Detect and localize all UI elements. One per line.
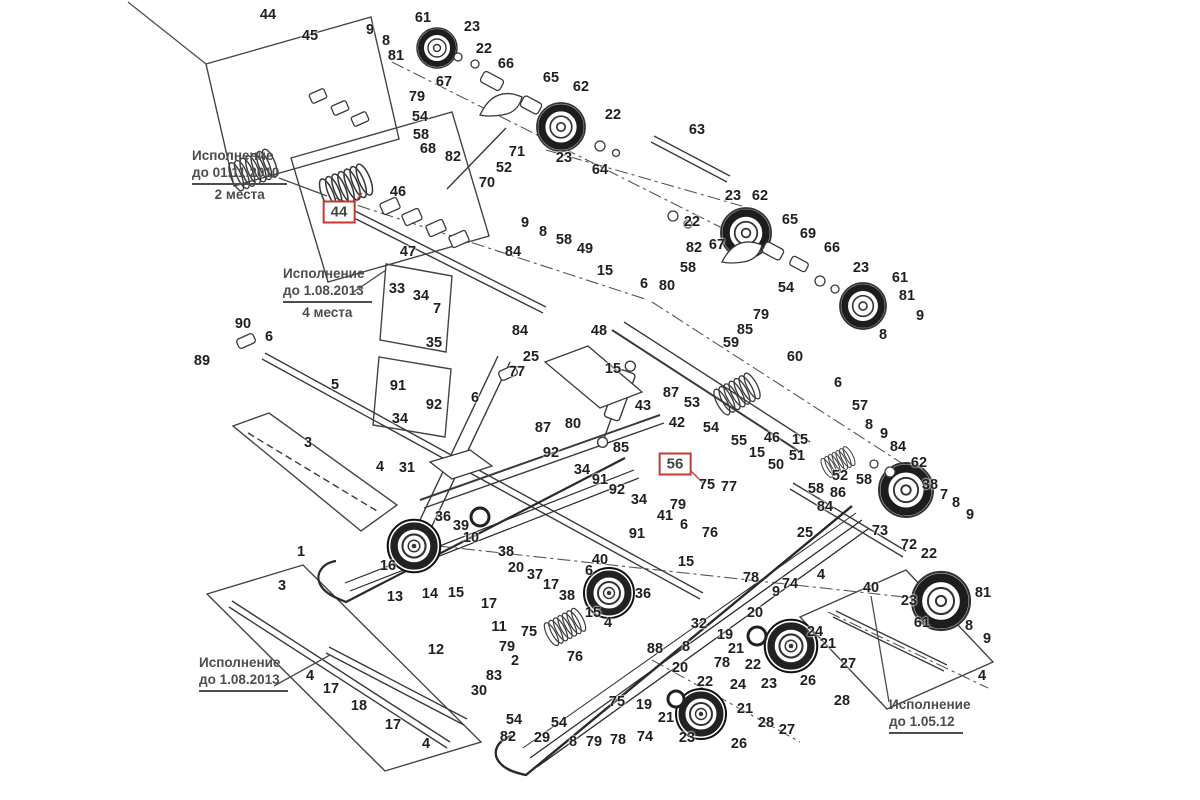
part-number-84: 84: [505, 245, 521, 260]
part-number-36: 36: [435, 510, 451, 525]
part-number-23: 23: [464, 20, 480, 35]
part-number-81: 81: [388, 49, 404, 64]
part-number-34: 34: [631, 493, 647, 508]
part-number-66: 66: [498, 57, 514, 72]
part-number-71: 71: [509, 145, 525, 160]
part-number-76: 76: [567, 650, 583, 665]
part-number-9: 9: [983, 632, 991, 647]
part-number-58: 58: [856, 473, 872, 488]
note-2010-sub: 2 места: [192, 185, 287, 203]
part-number-4: 4: [306, 669, 314, 684]
callout-labels-layer: 4445986181232266677954586882715270466562…: [0, 0, 1200, 800]
part-number-22: 22: [697, 675, 713, 690]
part-number-59: 59: [723, 336, 739, 351]
part-number-66: 66: [824, 241, 840, 256]
part-number-75: 75: [521, 625, 537, 640]
part-number-8: 8: [865, 418, 873, 433]
part-number-37: 37: [527, 568, 543, 583]
part-number-47: 47: [400, 245, 416, 260]
part-number-32: 32: [691, 617, 707, 632]
part-number-48: 48: [591, 324, 607, 339]
part-number-25: 25: [797, 526, 813, 541]
part-number-54: 54: [506, 713, 522, 728]
part-number-79: 79: [409, 90, 425, 105]
part-number-1: 1: [297, 545, 305, 560]
part-number-92: 92: [426, 398, 442, 413]
part-number-81: 81: [899, 289, 915, 304]
part-number-8: 8: [879, 328, 887, 343]
exploded-parts-diagram: 4445986181232266677954586882715270466562…: [0, 0, 1200, 800]
part-number-8: 8: [569, 735, 577, 750]
part-number-88: 88: [647, 642, 663, 657]
part-number-49: 49: [577, 242, 593, 257]
part-number-6: 6: [680, 518, 688, 533]
part-number-89: 89: [194, 354, 210, 369]
part-number-75: 75: [609, 695, 625, 710]
part-number-9: 9: [366, 23, 374, 38]
part-number-18: 18: [351, 699, 367, 714]
part-number-87: 87: [663, 386, 679, 401]
part-number-6: 6: [834, 376, 842, 391]
part-number-92: 92: [543, 446, 559, 461]
part-number-34: 34: [392, 412, 408, 427]
note-2010: Исполнениедо 01.11.20102 места: [192, 148, 287, 203]
part-number-9: 9: [916, 309, 924, 324]
part-number-22: 22: [684, 215, 700, 230]
part-number-87: 87: [535, 421, 551, 436]
part-number-83: 83: [486, 669, 502, 684]
note-2013-4: Исполнениедо 1.08.20134 места: [283, 266, 372, 321]
part-number-9: 9: [966, 508, 974, 523]
part-number-23: 23: [761, 677, 777, 692]
part-number-36: 36: [635, 587, 651, 602]
part-number-78: 78: [610, 733, 626, 748]
part-number-84: 84: [890, 440, 906, 455]
part-number-8: 8: [952, 496, 960, 511]
part-number-20: 20: [672, 661, 688, 676]
part-number-21: 21: [737, 702, 753, 717]
part-number-14: 14: [422, 587, 438, 602]
part-number-15: 15: [749, 446, 765, 461]
part-number-16: 16: [380, 559, 396, 574]
part-number-60: 60: [787, 350, 803, 365]
part-number-62: 62: [911, 456, 927, 471]
part-number-57: 57: [852, 399, 868, 414]
note-2012-line1: Исполнение: [889, 697, 970, 713]
part-number-23: 23: [901, 594, 917, 609]
part-number-61: 61: [415, 11, 431, 26]
part-number-34: 34: [413, 289, 429, 304]
part-number-58: 58: [808, 482, 824, 497]
part-number-21: 21: [658, 711, 674, 726]
part-number-79: 79: [499, 640, 515, 655]
part-number-22: 22: [476, 42, 492, 57]
part-number-40: 40: [863, 581, 879, 596]
part-number-19: 19: [636, 698, 652, 713]
part-number-61: 61: [914, 616, 930, 631]
part-number-65: 65: [782, 213, 798, 228]
part-number-35: 35: [426, 336, 442, 351]
part-number-67: 67: [709, 238, 725, 253]
part-number-5: 5: [331, 378, 339, 393]
part-number-7: 7: [940, 488, 948, 503]
part-number-4: 4: [817, 568, 825, 583]
part-number-68: 68: [420, 142, 436, 157]
part-number-80: 80: [659, 279, 675, 294]
part-number-42: 42: [669, 416, 685, 431]
part-number-44: 44: [260, 8, 276, 23]
part-number-75: 75: [699, 478, 715, 493]
part-number-23: 23: [853, 261, 869, 276]
part-number-91: 91: [629, 527, 645, 542]
part-number-12: 12: [428, 643, 444, 658]
part-number-6: 6: [265, 330, 273, 345]
part-number-82: 82: [686, 241, 702, 256]
part-number-4: 4: [604, 616, 612, 631]
highlighted-part-number-44: 44: [323, 201, 356, 224]
part-number-27: 27: [779, 723, 795, 738]
part-number-38: 38: [559, 589, 575, 604]
part-number-38: 38: [922, 478, 938, 493]
part-number-22: 22: [921, 547, 937, 562]
part-number-31: 31: [399, 461, 415, 476]
part-number-85: 85: [613, 441, 629, 456]
part-number-15: 15: [448, 586, 464, 601]
part-number-54: 54: [551, 716, 567, 731]
part-number-58: 58: [556, 233, 572, 248]
part-number-43: 43: [635, 399, 651, 414]
note-2012-line2: до 1.05.12: [889, 713, 963, 734]
highlighted-part-number-56: 56: [659, 453, 692, 476]
part-number-20: 20: [747, 606, 763, 621]
part-number-61: 61: [892, 271, 908, 286]
part-number-82: 82: [500, 730, 516, 745]
part-number-3: 3: [304, 436, 312, 451]
part-number-28: 28: [758, 716, 774, 731]
part-number-8: 8: [965, 619, 973, 634]
part-number-52: 52: [832, 469, 848, 484]
part-number-69: 69: [800, 227, 816, 242]
note-2010-line1: Исполнение: [192, 148, 287, 164]
note-2013-line2: до 1.08.2013: [199, 671, 288, 692]
part-number-23: 23: [725, 189, 741, 204]
part-number-64: 64: [592, 163, 608, 178]
part-number-6: 6: [640, 277, 648, 292]
part-number-21: 21: [728, 642, 744, 657]
note-2013-line1: Исполнение: [199, 655, 288, 671]
part-number-78: 78: [714, 656, 730, 671]
part-number-41: 41: [657, 509, 673, 524]
part-number-22: 22: [745, 658, 761, 673]
part-number-27: 27: [840, 657, 856, 672]
part-number-72: 72: [901, 538, 917, 553]
note-2013-4-line2: до 1.08.2013: [283, 282, 372, 303]
part-number-76: 76: [702, 526, 718, 541]
part-number-67: 67: [436, 75, 452, 90]
part-number-90: 90: [235, 317, 251, 332]
part-number-79: 79: [753, 308, 769, 323]
part-number-6: 6: [585, 564, 593, 579]
part-number-62: 62: [573, 80, 589, 95]
part-number-63: 63: [689, 123, 705, 138]
part-number-8: 8: [539, 225, 547, 240]
part-number-34: 34: [574, 463, 590, 478]
note-2013: Исполнениедо 1.08.2013: [199, 655, 288, 692]
part-number-51: 51: [789, 449, 805, 464]
part-number-8: 8: [382, 34, 390, 49]
part-number-15: 15: [597, 264, 613, 279]
part-number-11: 11: [491, 620, 506, 635]
part-number-28: 28: [834, 694, 850, 709]
part-number-21: 21: [820, 637, 836, 652]
part-number-22: 22: [605, 108, 621, 123]
part-number-84: 84: [817, 500, 833, 515]
part-number-91: 91: [390, 379, 406, 394]
part-number-74: 74: [782, 577, 798, 592]
part-number-53: 53: [684, 396, 700, 411]
part-number-17: 17: [543, 578, 559, 593]
part-number-23: 23: [556, 151, 572, 166]
note-2013-4-line1: Исполнение: [283, 266, 372, 282]
part-number-77: 77: [509, 365, 525, 380]
part-number-46: 46: [390, 185, 406, 200]
part-number-50: 50: [768, 458, 784, 473]
part-number-58: 58: [680, 261, 696, 276]
note-2013-4-sub: 4 места: [283, 303, 372, 321]
part-number-9: 9: [521, 216, 529, 231]
part-number-70: 70: [479, 176, 495, 191]
part-number-92: 92: [609, 483, 625, 498]
part-number-40: 40: [592, 553, 608, 568]
part-number-20: 20: [508, 561, 524, 576]
part-number-4: 4: [376, 460, 384, 475]
part-number-65: 65: [543, 71, 559, 86]
part-number-17: 17: [481, 597, 497, 612]
part-number-23: 23: [679, 731, 695, 746]
part-number-3: 3: [278, 579, 286, 594]
part-number-81: 81: [975, 586, 991, 601]
part-number-52: 52: [496, 161, 512, 176]
part-number-15: 15: [605, 362, 621, 377]
part-number-79: 79: [586, 735, 602, 750]
part-number-82: 82: [445, 150, 461, 165]
part-number-30: 30: [471, 684, 487, 699]
part-number-91: 91: [592, 473, 608, 488]
part-number-80: 80: [565, 417, 581, 432]
part-number-54: 54: [778, 281, 794, 296]
part-number-54: 54: [703, 421, 719, 436]
part-number-17: 17: [385, 718, 401, 733]
part-number-4: 4: [978, 669, 986, 684]
part-number-46: 46: [764, 431, 780, 446]
part-number-9: 9: [772, 585, 780, 600]
part-number-2: 2: [511, 654, 519, 669]
part-number-7: 7: [433, 302, 441, 317]
part-number-13: 13: [387, 590, 403, 605]
part-number-17: 17: [323, 682, 339, 697]
part-number-10: 10: [463, 531, 479, 546]
part-number-8: 8: [682, 640, 690, 655]
part-number-33: 33: [389, 282, 405, 297]
part-number-55: 55: [731, 434, 747, 449]
part-number-6: 6: [471, 391, 479, 406]
part-number-15: 15: [585, 606, 601, 621]
part-number-4: 4: [422, 737, 430, 752]
part-number-85: 85: [737, 323, 753, 338]
note-2012: Исполнениедо 1.05.12: [889, 697, 970, 734]
part-number-62: 62: [752, 189, 768, 204]
part-number-54: 54: [412, 110, 428, 125]
part-number-26: 26: [800, 674, 816, 689]
part-number-25: 25: [523, 350, 539, 365]
part-number-29: 29: [534, 731, 550, 746]
part-number-26: 26: [731, 737, 747, 752]
part-number-84: 84: [512, 324, 528, 339]
part-number-77: 77: [721, 480, 737, 495]
note-2010-line2: до 01.11.2010: [192, 164, 287, 185]
part-number-15: 15: [792, 433, 808, 448]
part-number-74: 74: [637, 730, 653, 745]
part-number-9: 9: [880, 427, 888, 442]
part-number-24: 24: [730, 678, 746, 693]
part-number-45: 45: [302, 29, 318, 44]
part-number-78: 78: [743, 571, 759, 586]
part-number-38: 38: [498, 545, 514, 560]
part-number-73: 73: [872, 524, 888, 539]
part-number-15: 15: [678, 555, 694, 570]
